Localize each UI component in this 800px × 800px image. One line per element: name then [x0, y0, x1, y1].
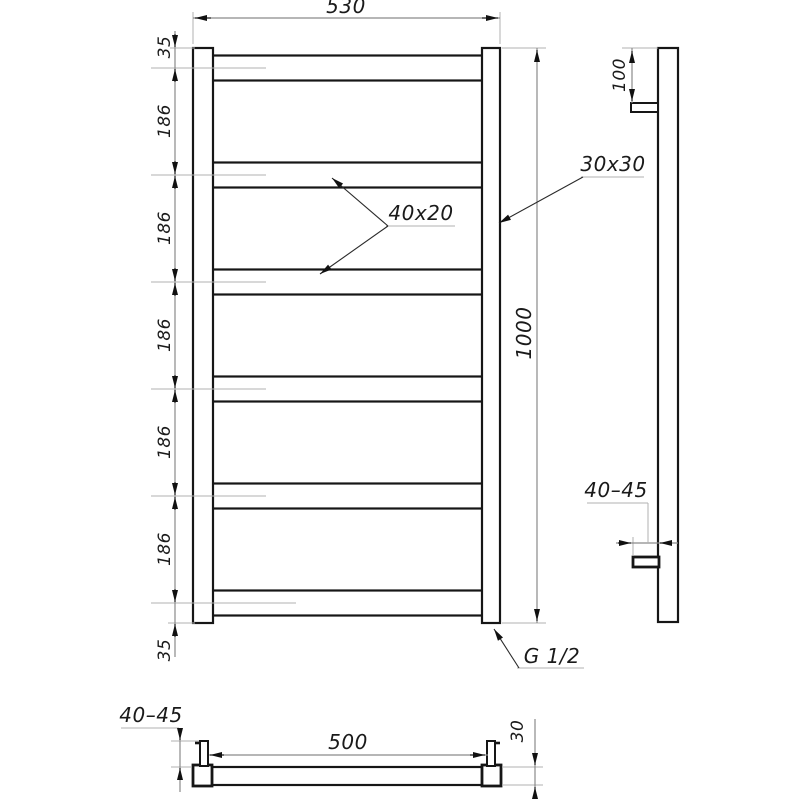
drawing-sheet: 530 1000 35 186 186 186 186 186 35 40x20… — [0, 0, 800, 800]
dim-bracket-spacing: 500 — [328, 730, 368, 754]
bottom-left-pin — [200, 741, 208, 766]
technical-drawing: 530 1000 35 186 186 186 186 186 35 40x20… — [0, 0, 800, 800]
bottom-tube — [212, 767, 482, 785]
dim-chain-186-5: 186 — [155, 532, 175, 566]
leader-g12 — [494, 629, 519, 668]
dim-top-bracket-offset: 100 — [610, 58, 630, 92]
dim-tube-depth: 30 — [508, 720, 528, 743]
bottom-right-pin — [487, 741, 495, 766]
dim-chain-186-3: 186 — [155, 318, 175, 352]
right-post — [482, 48, 500, 623]
dim-chain-186-2: 186 — [155, 211, 175, 245]
front-view: 530 1000 35 186 186 186 186 186 35 40x20… — [151, 0, 646, 668]
bottom-right-block — [482, 765, 501, 786]
dim-bottom-wall-clearance: 40–45 — [119, 703, 182, 727]
label-rung-profile: 40x20 — [388, 201, 453, 225]
side-view: 100 40–45 — [584, 48, 678, 622]
dim-chain-35-top: 35 — [155, 36, 175, 59]
dim-overall-width: 530 — [326, 0, 366, 18]
side-bottom-bracket — [633, 557, 659, 567]
dim-chain-35-bottom: 35 — [155, 639, 175, 662]
leader-40x20-lower — [320, 226, 388, 274]
dim-chain-186-1: 186 — [155, 104, 175, 138]
dim-overall-height: 1000 — [512, 307, 536, 360]
side-top-bracket — [631, 103, 658, 112]
leader-30x30 — [499, 177, 583, 223]
label-thread-connection: G 1/2 — [524, 644, 581, 668]
dim-chain-186-4: 186 — [155, 425, 175, 459]
left-post — [193, 48, 213, 623]
bottom-left-block — [193, 765, 212, 786]
dim-side-wall-clearance: 40–45 — [584, 478, 647, 502]
bottom-view: 40–45 500 30 — [119, 703, 543, 798]
side-post — [658, 48, 678, 622]
label-post-profile: 30x30 — [580, 152, 645, 176]
